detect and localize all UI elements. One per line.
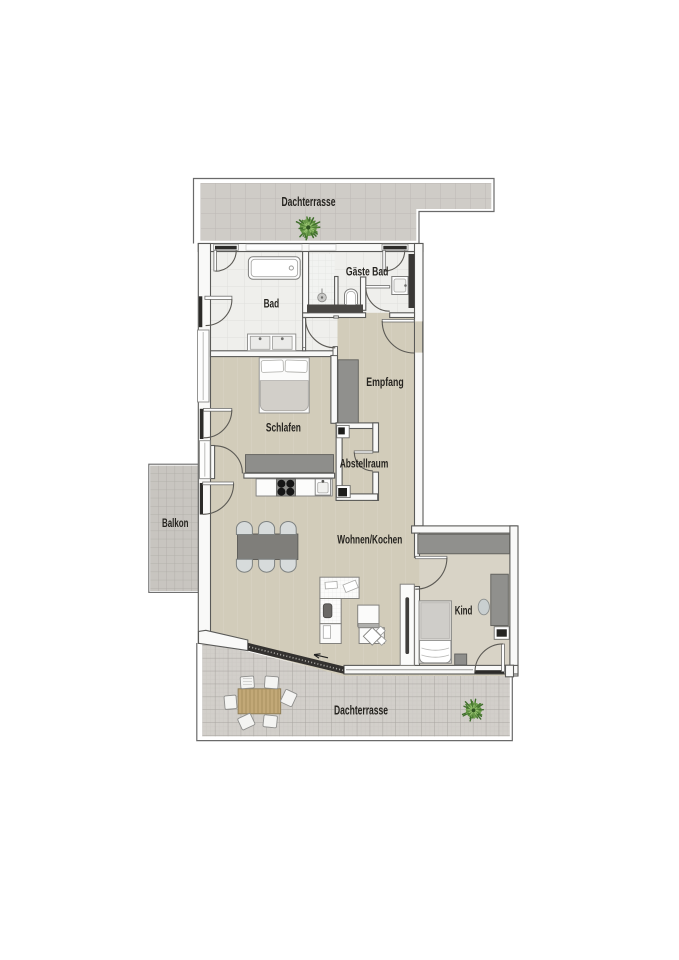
svg-text:Wohnen/Kochen: Wohnen/Kochen — [337, 532, 402, 546]
svg-text:Gäste Bad: Gäste Bad — [346, 264, 389, 278]
svg-text:Balkon: Balkon — [162, 516, 189, 530]
svg-text:Empfang: Empfang — [366, 375, 403, 389]
svg-text:Dachterrasse: Dachterrasse — [282, 195, 336, 209]
svg-text:Abstellraum: Abstellraum — [340, 456, 389, 470]
svg-text:Bad: Bad — [264, 296, 280, 310]
svg-text:Dachterrasse: Dachterrasse — [334, 704, 388, 718]
svg-text:Schlafen: Schlafen — [266, 421, 301, 435]
svg-text:Kind: Kind — [455, 604, 473, 618]
